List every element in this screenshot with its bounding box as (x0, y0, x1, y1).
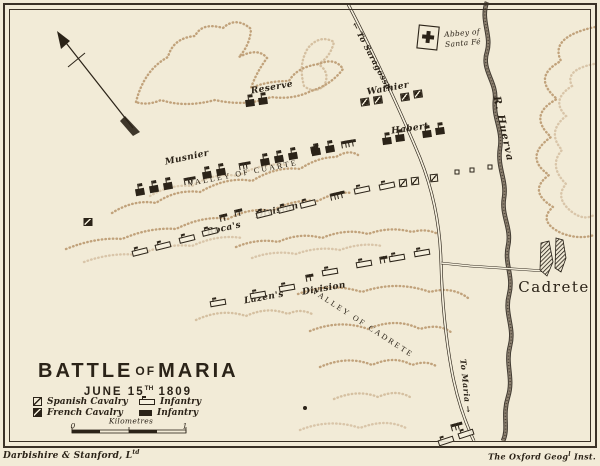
unit-fc-marker (360, 97, 370, 106)
spanish-cavalry-icon (33, 397, 42, 406)
legend-label-spanish-cavalry: Spanish Cavalry (47, 397, 139, 407)
flag-cluster (305, 274, 311, 282)
flag-cluster (341, 140, 354, 149)
flag-icon (348, 140, 350, 147)
river-huerva (485, 2, 512, 441)
flag-cluster (310, 146, 316, 154)
label-cadrete: Cadrete (518, 278, 589, 296)
unit-fi-marker (202, 171, 212, 179)
label-r-huerva: R. Huerva (491, 95, 516, 163)
flag-icon (234, 210, 237, 217)
imprint-institute-pre: The Oxford Geog (488, 452, 568, 462)
flag-icon (454, 423, 457, 430)
unit-sc-marker (430, 174, 439, 183)
unit-si-marker (278, 204, 295, 214)
imprint-publisher: Darbishire & Stanford, Ltd (3, 449, 140, 461)
unit-fi-marker (135, 188, 145, 196)
unit-fi-marker (258, 97, 268, 105)
unit-fi-marker (163, 182, 173, 190)
french-cavalry-icon (33, 408, 42, 417)
unit-fi-marker (274, 155, 284, 163)
legend-label-french-cavalry: French Cavalry (47, 408, 139, 418)
legend: Spanish Cavalry Infantry French Cavalry … (33, 396, 243, 418)
unit-si-marker (202, 227, 219, 237)
flag-icon (310, 147, 312, 154)
flag-cluster (330, 191, 343, 200)
flag-cluster (183, 177, 192, 185)
unit-si-marker (279, 284, 296, 293)
unit-si-marker (256, 209, 273, 219)
unit-si-marker (322, 268, 339, 277)
label-abbey-line2: Santa Fé (445, 37, 482, 49)
label-valley-of-cuarte: VALLEY OF CUARTE (187, 158, 298, 188)
scale-bar (72, 427, 186, 433)
legend-label-infantry-solid: Infantry (157, 408, 217, 418)
infantry-solid-icon (139, 410, 152, 416)
flag-cluster (379, 256, 385, 264)
label-musnier: Musnier (164, 148, 210, 167)
flag-icon (238, 163, 240, 170)
imprint-publisher-sup: td (132, 449, 139, 456)
flag-cluster (238, 162, 247, 170)
flag-icon (333, 193, 336, 200)
unit-dot-marker (303, 406, 307, 410)
title-block: BATTLEOFMARIA JUNE 15TH 1809 (38, 360, 238, 398)
flag-cluster (234, 209, 240, 217)
label-reserve: Reserve (250, 79, 294, 96)
flag-icon (383, 256, 385, 263)
flag-icon (340, 191, 343, 198)
title-word-battle: BATTLE (38, 360, 133, 382)
date-ordinal: TH (145, 385, 154, 392)
unit-si-marker (250, 291, 267, 300)
flag-cluster (450, 423, 460, 432)
flag-icon (450, 424, 453, 431)
label-valley-of-cadrete: VALLEY OF CADRETE (311, 287, 416, 359)
flag-icon (330, 194, 333, 201)
flag-icon (344, 141, 346, 148)
label-wathier: Wathier (366, 80, 410, 97)
infantry-open-icon (139, 399, 155, 405)
flag-icon (219, 215, 222, 222)
unit-fc-marker (84, 218, 93, 226)
unit-si-marker (379, 181, 396, 190)
flag-icon (237, 209, 240, 216)
unit-si-marker (389, 254, 406, 263)
abbey-symbol (417, 25, 439, 50)
title-word-of: OF (135, 364, 156, 378)
label-rocas-division: Division (254, 201, 299, 221)
unit-fi-marker (288, 152, 298, 160)
unit-si-marker (300, 199, 317, 209)
cadrete-town (540, 238, 566, 276)
imprint-publisher-text: Darbishire & Stanford, L (3, 451, 132, 461)
unit-fc-marker (373, 95, 383, 104)
unit-si-marker (132, 247, 149, 257)
unit-fi-marker (382, 137, 392, 145)
legend-label-infantry-open: Infantry (160, 397, 220, 407)
unit-so-marker (488, 165, 493, 170)
road-cadrete (441, 263, 545, 271)
flag-icon (242, 162, 244, 169)
unit-si-marker (457, 429, 474, 440)
unit-si-marker (155, 241, 172, 251)
unit-fi-marker (435, 127, 445, 135)
label-to-saragossa: ← To Saragossa (350, 20, 394, 91)
flag-icon (351, 140, 353, 147)
north-arrow-icon (57, 31, 140, 136)
unit-fc-marker (413, 89, 423, 98)
imprint-institute: The Oxford Geogl Inst. (488, 451, 596, 462)
label-lazens: Lazen's (243, 290, 284, 307)
unit-fi-marker (395, 134, 405, 142)
flag-icon (314, 146, 316, 153)
label-scale-0: 0 (70, 422, 75, 431)
unit-si-marker (414, 249, 431, 258)
unit-fi-marker (216, 168, 226, 176)
label-rocas: Roca's (206, 220, 242, 238)
unit-si-marker (356, 260, 373, 269)
flag-cluster (219, 214, 225, 222)
unit-si-marker (210, 299, 227, 308)
battle-map-page: ReserveMusnierWathierHabertRoca'sDivisio… (0, 0, 600, 466)
flag-icon (222, 214, 225, 221)
label-scale-1: 1 (182, 422, 187, 431)
unit-sc-marker (399, 179, 408, 188)
flag-icon (305, 275, 307, 282)
unit-so-marker (455, 170, 460, 175)
unit-si-marker (179, 234, 196, 244)
unit-fi-marker (245, 99, 255, 107)
flag-icon (336, 192, 339, 199)
unit-fi-marker (325, 145, 335, 153)
unit-fi-marker (311, 148, 321, 156)
legend-row-1: Spanish Cavalry Infantry (33, 396, 243, 407)
unit-fi-marker (260, 158, 270, 166)
flag-icon (309, 274, 311, 281)
imprint-institute-post: Inst. (571, 452, 596, 462)
road-saragossa-maria (348, 4, 474, 441)
unit-fi-marker (422, 130, 432, 138)
label-lazens-division: Division (301, 280, 346, 298)
flag-icon (341, 141, 343, 148)
legend-row-2: French Cavalry Infantry (33, 407, 243, 418)
label-abbey-line1: Abbey of (444, 27, 480, 39)
label-habert: Habert (391, 121, 430, 136)
unit-si-marker (437, 436, 454, 447)
title-word-maria: MARIA (158, 360, 239, 382)
unit-fc-marker (400, 92, 410, 101)
flag-icon (183, 178, 185, 185)
unit-fi-marker (149, 185, 159, 193)
flag-icon (190, 177, 192, 184)
flag-icon (379, 257, 381, 264)
flag-icon (187, 177, 189, 184)
map-title: BATTLEOFMARIA (38, 360, 238, 383)
unit-sc-marker (411, 177, 420, 186)
unit-so-marker (470, 168, 475, 173)
label-to-maria: To Maria → (458, 359, 474, 414)
flag-icon (245, 162, 247, 169)
flag-icon (457, 423, 460, 430)
unit-si-marker (354, 185, 371, 194)
